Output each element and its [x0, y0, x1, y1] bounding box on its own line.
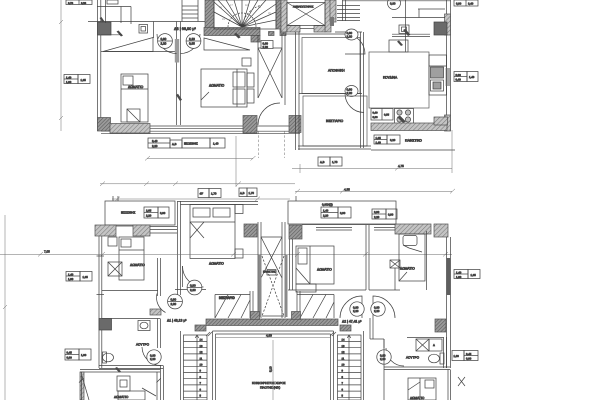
- svg-text:0,80: 0,80: [67, 357, 73, 360]
- svg-text:ΠΙΛΟΤΗΣ (Η/Χ): ΠΙΛΟΤΗΣ (Η/Χ): [260, 386, 280, 390]
- svg-text:ΚΑΘΙΣΤΙΚΟ: ΚΑΘΙΣΤΙΚΟ: [405, 139, 422, 143]
- svg-text:ΔΩΜΑΤΙΟ: ΔΩΜΑΤΙΟ: [317, 268, 332, 272]
- svg-text:0,20: 0,20: [81, 2, 87, 5]
- svg-text:Δ,B: Δ,B: [172, 142, 177, 146]
- svg-text:Δ: Δ: [433, 343, 435, 347]
- svg-text:ΔΩΜΑΤΙΟ: ΔΩΜΑΤΙΟ: [209, 84, 225, 88]
- svg-text:ΛΟΥΤΡΟ: ΛΟΥΤΡΟ: [406, 356, 420, 360]
- svg-text:Δ,B: Δ,B: [320, 160, 325, 164]
- svg-text:1,00: 1,00: [456, 276, 462, 279]
- svg-text:ΔΩΜΑΤΙΟ: ΔΩΜΑΤΙΟ: [128, 85, 144, 89]
- svg-text:1,40: 1,40: [68, 274, 74, 277]
- svg-text:1,40: 1,40: [213, 141, 219, 145]
- svg-text:ΚΑΘΙΣΤΙΚΟ: ΚΑΘΙΣΤΙΚΟ: [263, 271, 276, 274]
- svg-text:7,05: 7,05: [44, 250, 50, 254]
- svg-text:3,40: 3,40: [152, 139, 158, 143]
- svg-text:0,90: 0,90: [374, 211, 380, 214]
- svg-text:2,20: 2,20: [171, 302, 177, 306]
- svg-text:0,45: 0,45: [466, 353, 472, 356]
- svg-text:2,20: 2,20: [146, 215, 152, 218]
- svg-text:ΔΩΜΑΤΙΟ: ΔΩΜΑΤΙΟ: [410, 396, 425, 400]
- svg-text:ΔΩΜΑΤΙΟ: ΔΩΜΑΤΙΟ: [130, 263, 145, 267]
- svg-text:19: 19: [258, 6, 261, 9]
- svg-text:0,90: 0,90: [388, 214, 394, 217]
- svg-text:Δ1 | 48,13 μ²: Δ1 | 48,13 μ²: [167, 319, 187, 323]
- svg-text:ΑΝΕΛΚΥΣΤΗΡΑΣ: ΑΝΕΛΚΥΣΤΗΡΑΣ: [293, 6, 314, 9]
- svg-text:5,10: 5,10: [269, 366, 273, 372]
- svg-text:0,90: 0,90: [373, 116, 379, 119]
- svg-text:2,20: 2,20: [353, 309, 359, 313]
- svg-text:2,20: 2,20: [150, 357, 156, 361]
- svg-text:2,20: 2,20: [380, 357, 386, 361]
- svg-text:ΑΠΟΘΗΚΗ: ΑΠΟΘΗΚΗ: [328, 69, 345, 73]
- svg-text:1,35: 1,35: [81, 79, 87, 82]
- svg-text:0,90: 0,90: [456, 74, 462, 77]
- svg-text:0,70: 0,70: [68, 2, 74, 5]
- svg-text:1,00: 1,00: [68, 278, 74, 281]
- svg-text:Δ3 | 66,90 μ²: Δ3 | 66,90 μ²: [174, 27, 196, 31]
- svg-text:0,20: 0,20: [390, 139, 396, 142]
- svg-text:ΒΕΣΤΙΑΡΙΟ: ΒΕΣΤΙΑΡΙΟ: [219, 296, 235, 300]
- svg-text:0,40: 0,40: [373, 112, 379, 115]
- svg-text:1,40: 1,40: [323, 210, 329, 213]
- svg-text:1,70: 1,70: [249, 191, 255, 195]
- svg-text:2,20: 2,20: [347, 34, 353, 38]
- svg-text:1,70: 1,70: [211, 192, 217, 196]
- svg-text:0,90: 0,90: [340, 212, 346, 215]
- svg-text:1,40: 1,40: [376, 141, 382, 144]
- svg-text:2,05: 2,05: [146, 210, 152, 213]
- svg-text:0,80: 0,80: [160, 212, 166, 215]
- svg-text:1,05: 1,05: [376, 137, 382, 140]
- svg-text:1,40: 1,40: [456, 272, 462, 275]
- svg-text:2,20: 2,20: [374, 309, 380, 313]
- svg-text:4,35: 4,35: [344, 187, 350, 191]
- svg-text:2,20: 2,20: [347, 91, 353, 95]
- svg-text:0,35: 0,35: [384, 114, 390, 117]
- svg-text:2,20: 2,20: [190, 288, 196, 292]
- svg-text:2,20: 2,20: [263, 45, 269, 49]
- svg-text:1,60: 1,60: [454, 355, 460, 358]
- svg-text:0,90Χ(2): 0,90Χ(2): [322, 203, 333, 207]
- svg-text:0,95: 0,95: [189, 42, 195, 46]
- svg-text:ΕΣΩΣΘΗΣ: ΕΣΩΣΘΗΣ: [184, 141, 198, 145]
- svg-text:0,90: 0,90: [456, 3, 462, 6]
- svg-text:0,90: 0,90: [390, 2, 396, 6]
- svg-text:1,40: 1,40: [66, 77, 72, 80]
- svg-text:4,60: 4,60: [266, 334, 272, 338]
- svg-text:2,20: 2,20: [374, 216, 380, 219]
- svg-text:2,20: 2,20: [152, 144, 158, 148]
- svg-text:40': 40': [200, 192, 204, 196]
- svg-text:15: 15: [222, 18, 225, 21]
- svg-text:ΔΩΜΑΤΙΟ: ΔΩΜΑΤΙΟ: [400, 267, 415, 271]
- svg-text:17: 17: [230, 4, 233, 7]
- svg-text:ΛΟΥΤΡΟ: ΛΟΥΤΡΟ: [136, 343, 150, 347]
- svg-text:Δ,B: Δ,B: [240, 191, 245, 195]
- svg-text:1,70: 1,70: [332, 160, 338, 164]
- svg-text:ΔΩΜΑΤΙΟ: ΔΩΜΑΤΙΟ: [114, 395, 129, 399]
- svg-text:16: 16: [219, 6, 222, 9]
- svg-text:2,20: 2,20: [161, 42, 167, 46]
- svg-text:1,35: 1,35: [83, 276, 89, 279]
- svg-text:0,80: 0,80: [466, 358, 472, 361]
- svg-text:4,75: 4,75: [398, 164, 404, 168]
- svg-text:1,00: 1,00: [66, 81, 72, 84]
- svg-text:2,20: 2,20: [189, 37, 195, 41]
- svg-text:ΚΟΥΔΙΝΑ: ΚΟΥΔΙΝΑ: [383, 76, 398, 80]
- svg-text:ΕΣΩΣΘΗΣ: ΕΣΩΣΘΗΣ: [121, 211, 135, 215]
- svg-text:2,20: 2,20: [323, 215, 329, 218]
- svg-text:1,40: 1,40: [469, 76, 475, 79]
- svg-text:0,40: 0,40: [456, 78, 462, 81]
- svg-text:3,40: 3,40: [468, 3, 474, 6]
- svg-text:0,45: 0,45: [67, 352, 73, 355]
- svg-text:0,90: 0,90: [190, 284, 196, 288]
- svg-text:0,90: 0,90: [161, 37, 167, 41]
- svg-text:Δ2 | 47,41 μ²: Δ2 | 47,41 μ²: [342, 320, 362, 324]
- svg-text:1,35: 1,35: [471, 274, 477, 277]
- svg-text:ΚΟΙΝΟΧΡΗΣΤΟΣ ΧΩΡΟΣ: ΚΟΙΝΟΧΡΗΣΤΟΣ ΧΩΡΟΣ: [252, 381, 286, 385]
- svg-text:1,00: 1,00: [81, 354, 87, 357]
- svg-text:ΔΩΜΑΤΙΟ: ΔΩΜΑΤΙΟ: [209, 262, 224, 266]
- svg-text:0,90: 0,90: [171, 298, 177, 302]
- svg-text:ΒΕΣΤΙΑΡΙΟ: ΒΕΣΤΙΑΡΙΟ: [326, 119, 344, 123]
